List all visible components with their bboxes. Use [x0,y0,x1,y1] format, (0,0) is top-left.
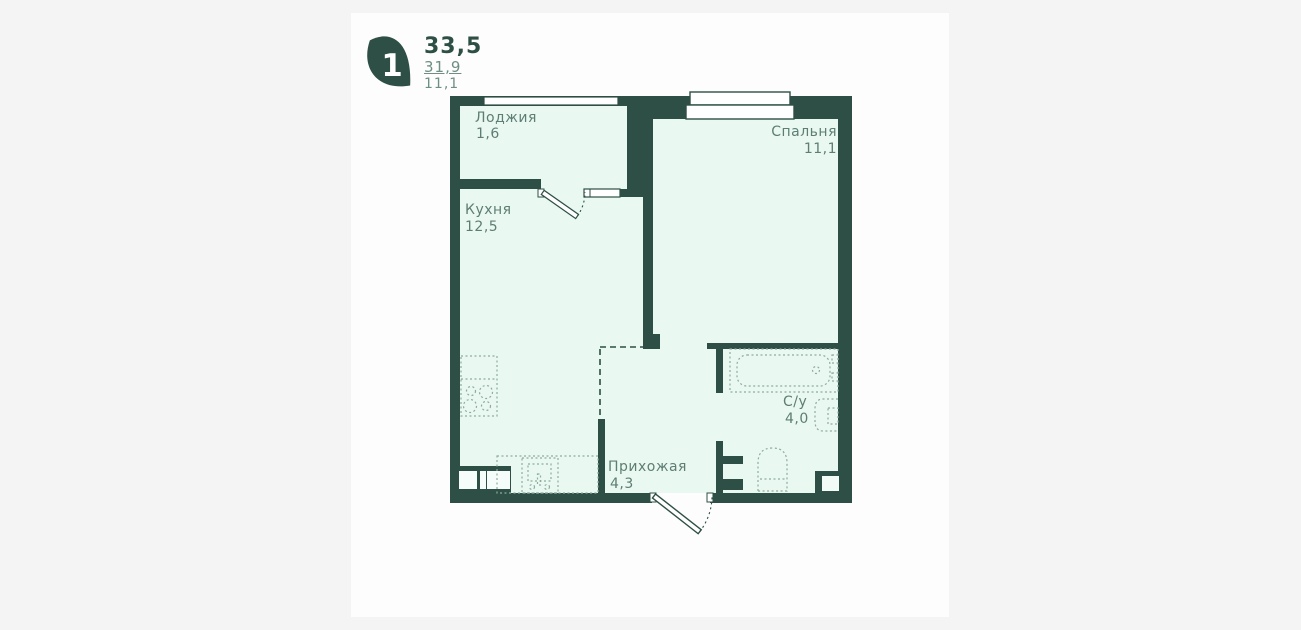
wall-hallway-left [598,419,605,493]
bedroom-window-inner [686,105,794,119]
shaft-bar-bottom [723,479,743,490]
room-loggia-fill-ext [541,106,627,189]
room-area-loggia: 1,6 [476,126,500,142]
kitchen-window-pane-2 [480,471,486,489]
kitchen-loggia-window [584,189,620,197]
wall-stub-bedroom [653,334,660,349]
room-area-bathroom: 4,0 [785,411,809,427]
wall-under-loggia [618,189,643,197]
shaft-bar-top [723,456,743,464]
floorplan-card: 1 33,5 31,9 11,1 [351,13,949,617]
room-area-kitchen: 12,5 [465,219,498,235]
floorplan-drawing: Лоджия 1,6 Кухня 12,5 Спальня 11,1 Прихо… [351,13,949,617]
room-label-bedroom: Спальня [771,124,837,140]
bathroom-doorway-gap [716,393,723,441]
kitchen-window-pane-1 [459,471,477,489]
room-label-loggia: Лоджия [475,110,537,126]
room-area-hallway: 4,3 [610,476,634,492]
kitchen-window-pane-3 [487,471,510,489]
bedroom-window-outer [690,92,790,105]
room-label-kitchen: Кухня [465,202,512,218]
room-area-bedroom: 11,1 [804,141,837,157]
loggia-window [484,97,618,105]
duct-inset [822,476,839,491]
room-label-bathroom: С/у [783,394,807,410]
room-label-hallway: Прихожая [608,459,687,475]
bedroom-doorway-gap [660,343,707,349]
